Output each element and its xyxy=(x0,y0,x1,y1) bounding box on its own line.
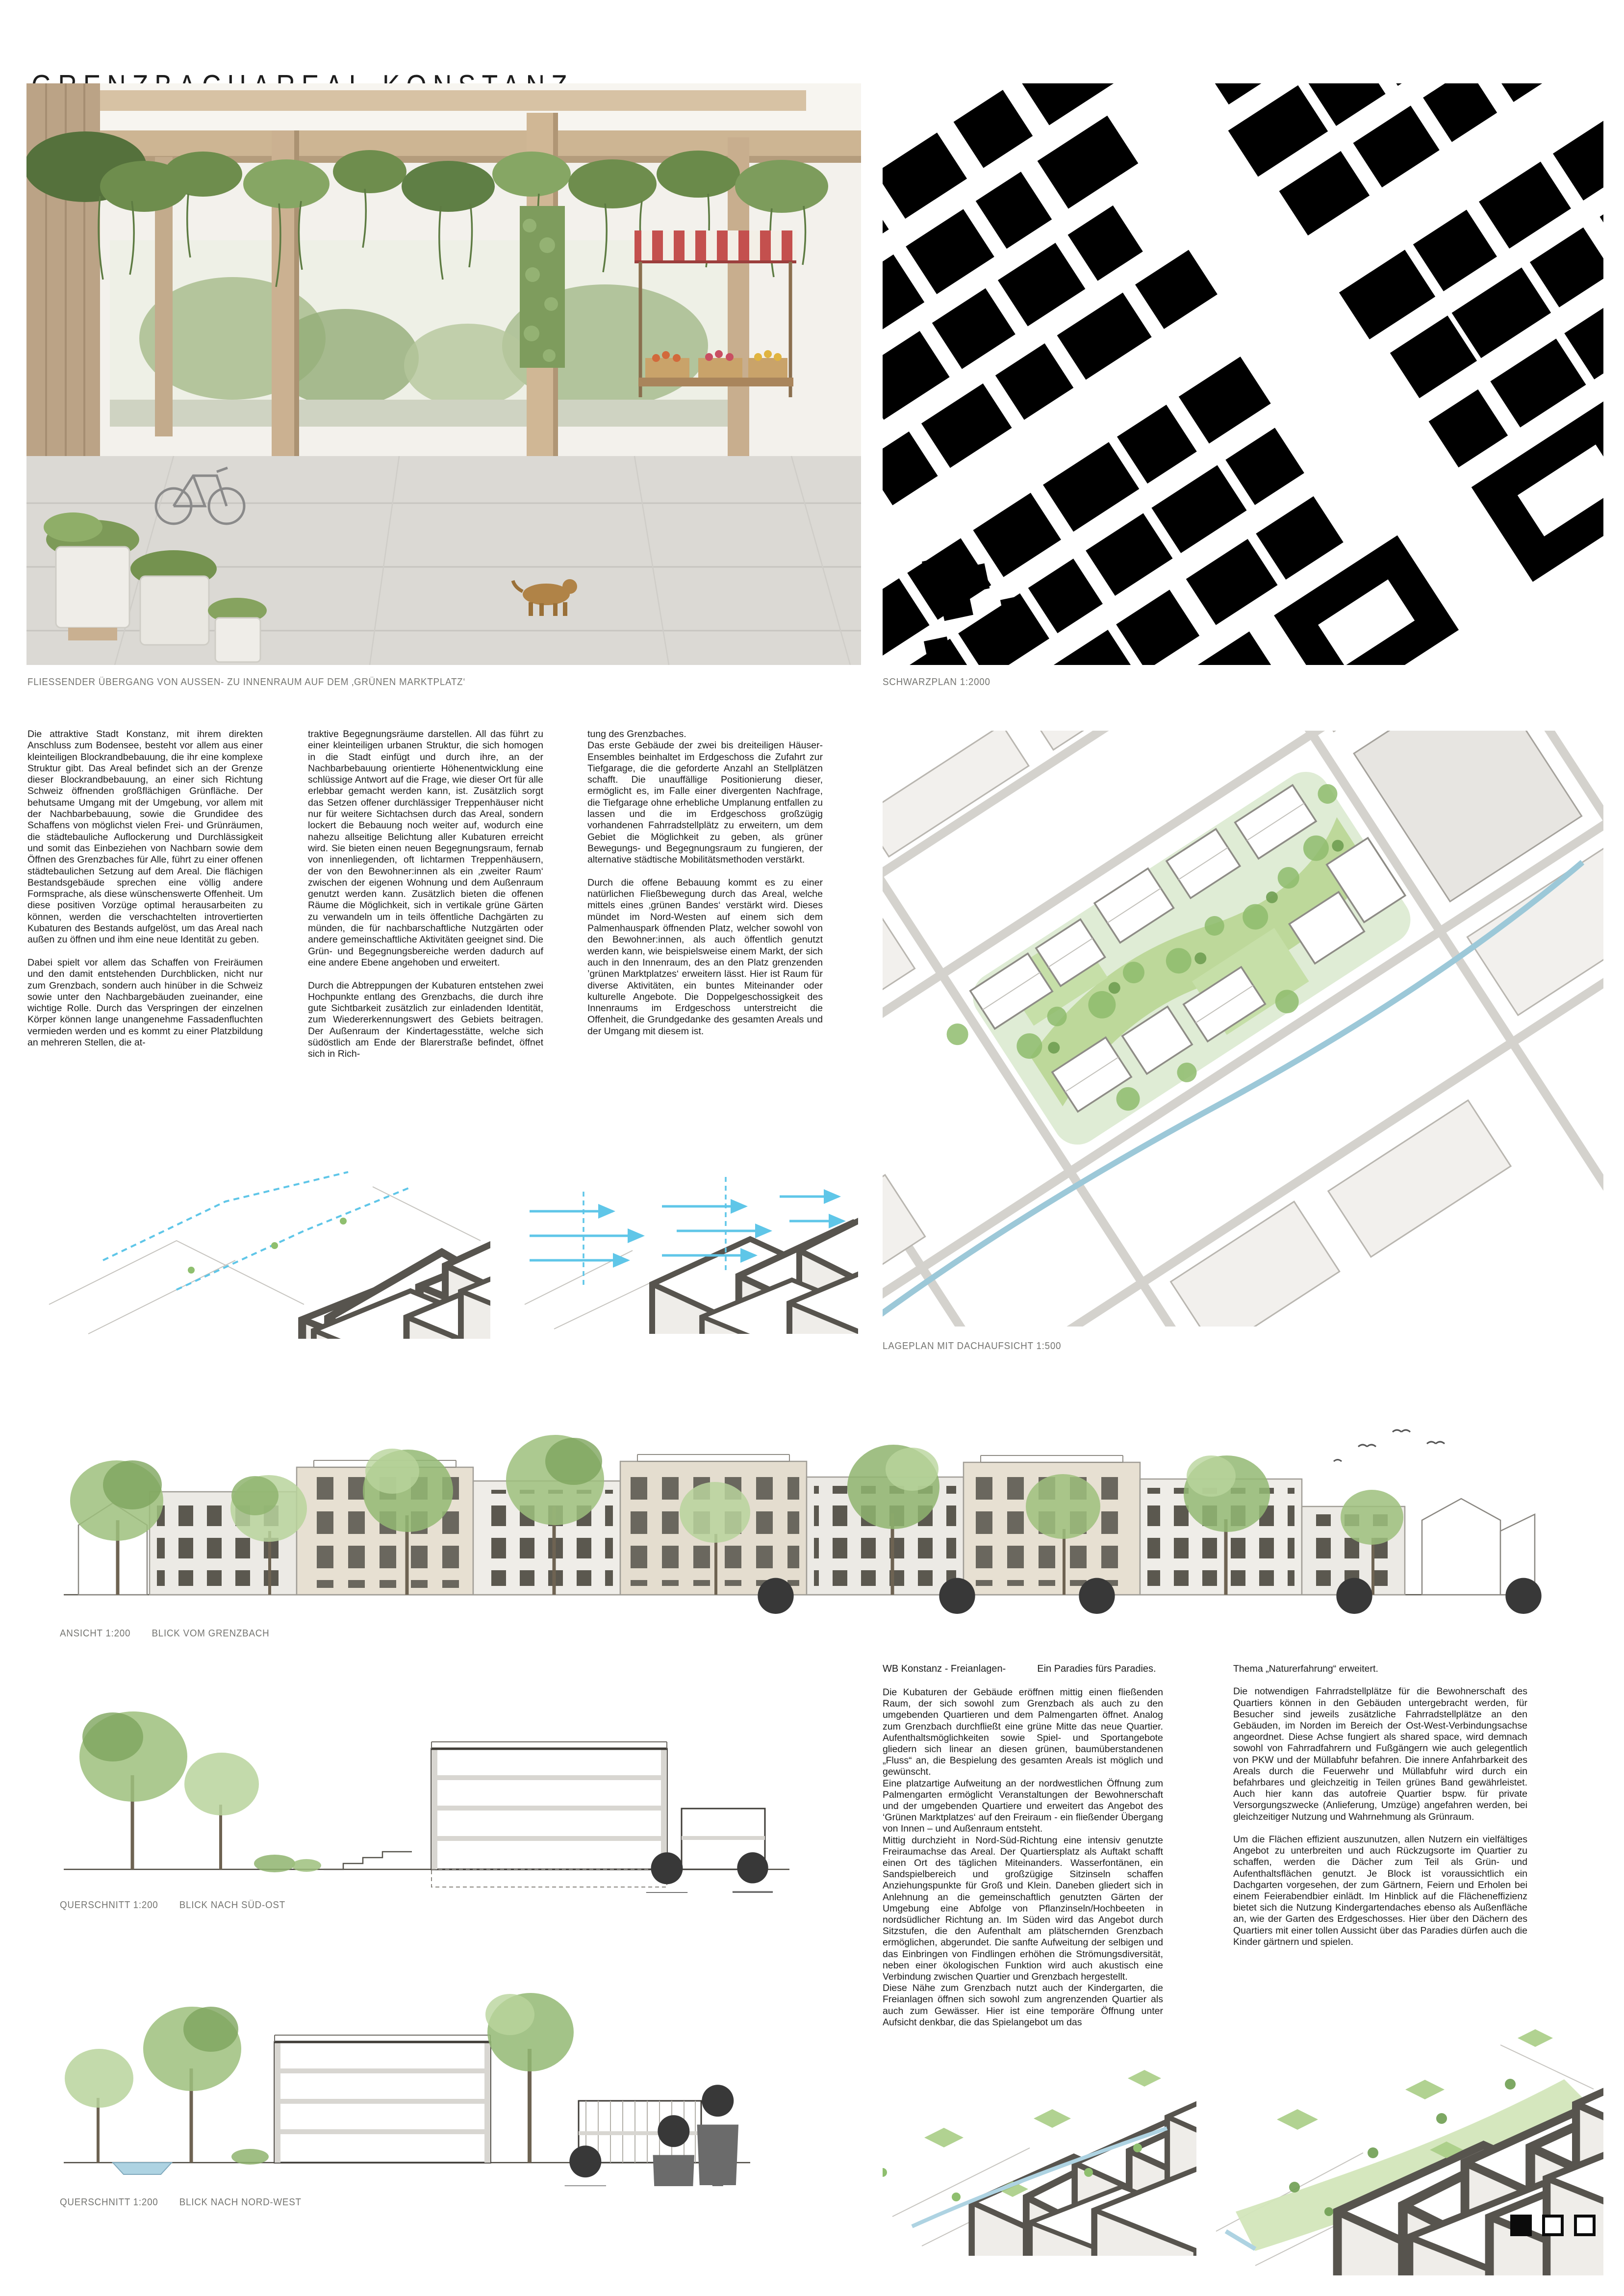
essay-paragraph: tung des Grenzbaches. xyxy=(587,729,823,740)
querschnitt-1-caption: QUERSCHNITT 1:200BLICK NACH SÜD-OST xyxy=(60,1900,285,1911)
freianlagen-paragraph: Um die Flächen effizient auszunutzen, al… xyxy=(1233,1834,1527,1948)
freianlagen-column-1: Die Kubaturen der Gebäude eröffnen mitti… xyxy=(883,1687,1163,2028)
essay-paragraph: Durch die offene Bebauung kommt es zu ei… xyxy=(587,877,823,1037)
page-indicator xyxy=(1510,2215,1596,2236)
freianlagen-heading: WB Konstanz - Freianlagen-Ein Paradies f… xyxy=(883,1663,1156,1675)
querschnitt-2-section-drawing xyxy=(59,1990,755,2186)
blue-dashed-roof-lines xyxy=(103,1172,412,1290)
essay-column-3: tung des Grenzbaches.Das erste Gebäude d… xyxy=(587,729,823,1037)
freianlagen-heading-left: WB Konstanz - Freianlagen- xyxy=(883,1663,1006,1674)
essay-paragraph: Durch die Abtreppungen der Kubaturen ent… xyxy=(308,980,543,1060)
axon-diagram-green-roofs xyxy=(883,2011,1196,2256)
freianlagen-paragraph xyxy=(1233,1823,1527,1834)
essay-column-1: Die attraktive Stadt Konstanz, mit ihrem… xyxy=(27,729,263,1048)
freianlagen-paragraph: Eine platzartige Aufweitung an der nordw… xyxy=(883,1778,1163,1835)
lageplan-caption: LAGEPLAN MIT DACHAUFSICHT 1:500 xyxy=(883,1341,1061,1352)
freianlagen-paragraph: Thema „Naturerfahrung“ erweitert. xyxy=(1233,1663,1527,1675)
freianlagen-column-2: Thema „Naturerfahrung“ erweitert.Die not… xyxy=(1233,1663,1527,1948)
page-indicator-square-3 xyxy=(1574,2215,1596,2236)
ansicht-caption: ANSICHT 1:200BLICK VOM GRENZBACH xyxy=(60,1628,269,1639)
freianlagen-paragraph: Mittig durchzieht in Nord-Süd-Richtung e… xyxy=(883,1835,1163,1983)
axon-diagram-bestand xyxy=(29,1128,490,1339)
freianlagen-paragraph: Die notwendigen Fahrradstellplätze für d… xyxy=(1233,1686,1527,1822)
essay-paragraph: Das erste Gebäude der zwei bis dreiteili… xyxy=(587,740,823,866)
essay-paragraph: Die attraktive Stadt Konstanz, mit ihrem… xyxy=(27,729,263,946)
lageplan-site-plan xyxy=(883,731,1603,1327)
essay-paragraph xyxy=(587,866,823,877)
page-indicator-square-1 xyxy=(1510,2215,1532,2236)
render-caption: FLIESSENDER ÜBERGANG VON AUSSEN- ZU INNE… xyxy=(27,677,465,688)
ansicht-elevation-drawing xyxy=(59,1403,1545,1618)
essay-paragraph: traktive Begegnungsräume darstellen. All… xyxy=(308,729,543,969)
querschnitt-1-section-drawing xyxy=(59,1702,794,1893)
competition-board: GRENZBACHAREAL KONSTANZ xyxy=(0,0,1624,2296)
axon-diagram-durchlaessigkeit xyxy=(515,1138,858,1334)
freianlagen-paragraph: Die Kubaturen der Gebäude eröffnen mitti… xyxy=(883,1687,1163,1778)
birds xyxy=(1334,1430,1445,1461)
schwarzplan-caption: SCHWARZPLAN 1:2000 xyxy=(883,677,990,688)
freianlagen-paragraph xyxy=(1233,1675,1527,1686)
essay-paragraph xyxy=(27,946,263,957)
page-indicator-square-2 xyxy=(1542,2215,1564,2236)
schwarzplan-figure-ground-map xyxy=(883,83,1603,665)
essay-column-2: traktive Begegnungsräume darstellen. All… xyxy=(308,729,543,1060)
render-marktplatz-image xyxy=(26,83,861,665)
freianlagen-heading-right: Ein Paradies fürs Paradies. xyxy=(1037,1663,1156,1674)
essay-paragraph: Dabei spielt vor allem das Schaffen von … xyxy=(27,957,263,1048)
querschnitt-2-caption: QUERSCHNITT 1:200BLICK NACH NORD-WEST xyxy=(60,2197,302,2208)
essay-paragraph xyxy=(308,969,543,980)
